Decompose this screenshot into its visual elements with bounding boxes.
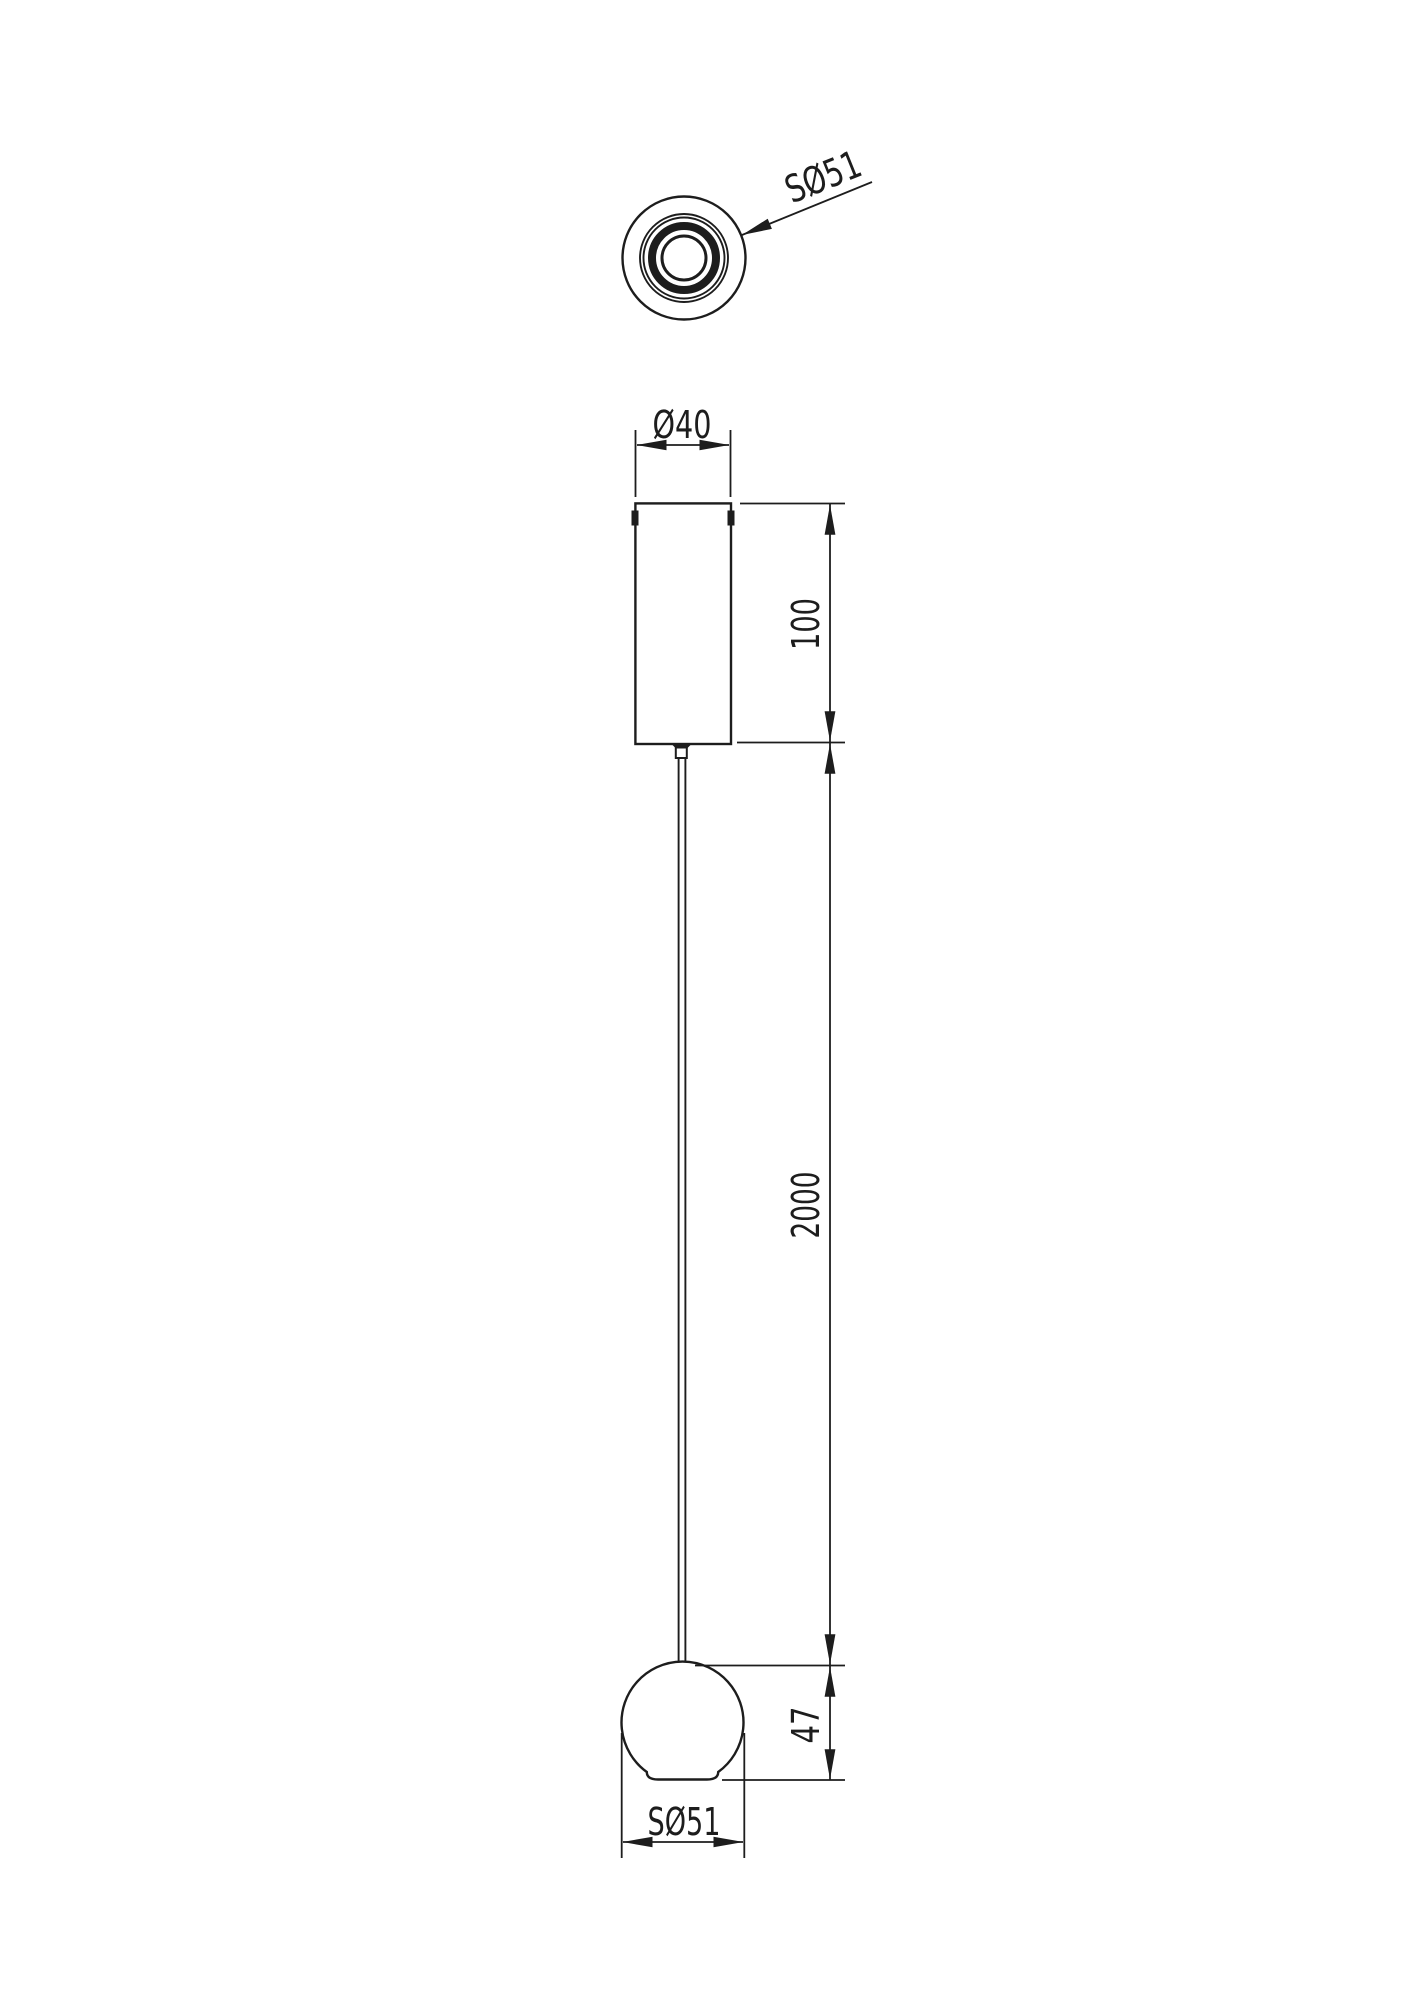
canopy-fixing-left (632, 511, 639, 526)
top-view: SØ51 (623, 142, 873, 320)
leader-arrowhead-icon (742, 219, 772, 235)
dim-canopy-diameter: Ø40 (636, 403, 731, 497)
canopy-fixing-right (728, 511, 735, 526)
arrowhead-up-icon (825, 744, 836, 774)
drawing-canvas: SØ51 Ø40 (0, 0, 1413, 2000)
front-view (621, 503, 743, 1779)
label-sphere-height: 47 (784, 1707, 828, 1744)
cable-gland (676, 748, 687, 759)
canopy-body (635, 503, 731, 744)
leader-sphere-diameter: SØ51 (742, 142, 872, 235)
label-cable-length: 2000 (784, 1172, 828, 1239)
technical-drawing: SØ51 Ø40 (0, 0, 1413, 2000)
label-sphere-diameter: SØ51 (648, 1800, 721, 1844)
arrowhead-down-icon (825, 1749, 836, 1779)
arrowhead-down-icon (825, 1634, 836, 1664)
arrowhead-up-icon (825, 505, 836, 535)
lens-aperture (662, 236, 706, 280)
arrowhead-down-icon (825, 711, 836, 741)
arrowhead-up-icon (825, 1667, 836, 1697)
sphere-diffuser (621, 1662, 743, 1780)
label-canopy-diameter: Ø40 (653, 403, 712, 447)
label-canopy-height: 100 (784, 598, 828, 650)
